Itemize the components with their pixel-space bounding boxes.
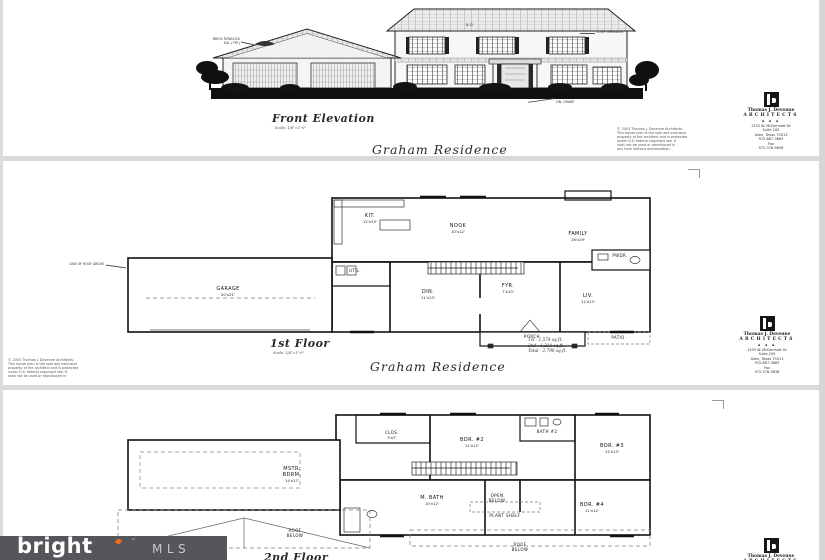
second-floor-drawing xyxy=(50,390,670,560)
room-mstr: MSTR. BDRM. 14'x17' xyxy=(283,466,302,483)
scan-edge xyxy=(819,0,825,560)
architect-stamp: Thomas J. Devenne ARCHITECTS ▪ ▪ ▪ 1333 … xyxy=(726,316,808,374)
copyright-note: © 2003 Thomas J. Devenne Architects. Thi… xyxy=(8,358,104,378)
architect-firm: ARCHITECTS xyxy=(726,337,808,342)
room-util: UTIL. xyxy=(349,268,361,273)
stamp-fax: 972-378-9636 xyxy=(730,146,812,150)
room-patio: PATIO xyxy=(611,335,624,340)
second-floor-title: 2nd Floor xyxy=(264,551,328,560)
room-clos: CLOS.5'x7' xyxy=(385,430,399,440)
architect-stamp: Thomas J. Devenne ARCHITECTS xyxy=(730,538,812,560)
room-mbath: M. BATH10'x12' xyxy=(420,495,444,506)
scanned-plan-sheet: BRICK ROWLOCK SILL (TYP.) 8:12 COMP. SHI… xyxy=(0,0,825,560)
architect-logo-icon xyxy=(760,316,775,331)
room-fyr: FYR.7'x10' xyxy=(502,283,514,294)
room-nook: NOOK10'x12' xyxy=(450,223,467,234)
first-floor-drawing xyxy=(50,180,670,370)
plant-shelf-label: PLANT SHELF xyxy=(489,513,520,518)
corner-mark xyxy=(688,169,700,178)
room-bdr4: BDR. #411'x12' xyxy=(580,502,604,513)
residence-name: Graham Residence xyxy=(370,359,506,374)
room-bath2: BATH #2 xyxy=(537,429,558,434)
copyright-note: © 2003 Thomas J. Devenne Architects. Thi… xyxy=(617,127,723,151)
elevation-annotation-grade: FIN. GRADE xyxy=(556,101,574,105)
roof-below-label: ROOF BELOW xyxy=(512,542,528,552)
first-floor-title: 1st Floor xyxy=(270,337,330,350)
panel-second-floor: CLOS.5'x7' BDR. #211'x12' BATH #2 BDR. #… xyxy=(0,390,825,560)
residence-name: Graham Residence xyxy=(372,142,508,157)
room-garage: GARAGE20'x21' xyxy=(216,286,239,297)
floorplan-walls xyxy=(128,191,650,346)
elevation-drawing xyxy=(195,4,665,119)
architect-stamp: Thomas J. Devenne ARCHITECTS ▪ ▪ ▪ 1333 … xyxy=(730,92,812,150)
bright-mls-brand-text: bright xyxy=(17,534,93,558)
elevation-annotation-shingles: COMP. SHINGLES xyxy=(596,31,623,35)
room-bdr2: BDR. #211'x12' xyxy=(460,437,484,448)
architect-firm: ARCHITECTS xyxy=(730,113,812,118)
stamp-dots: ▪ ▪ ▪ xyxy=(726,343,808,347)
elevation-annotation-pitch: 8:12 xyxy=(466,24,473,28)
room-open-below: OPEN BELOW xyxy=(489,493,505,503)
elevation-scale: Scale: 1/8"=1'-0" xyxy=(275,126,306,130)
bright-mls-watermark: bright ™ MLS xyxy=(0,536,227,560)
room-liv: LIV.11'x13' xyxy=(581,293,595,304)
room-din: DIN.11'x13' xyxy=(421,289,435,300)
bright-mls-suffix-text: MLS xyxy=(152,542,190,556)
annotation-leader xyxy=(580,33,595,34)
room-bdr3: BDR. #312'x13' xyxy=(600,443,624,454)
roof-below-label: ROOF BELOW xyxy=(287,528,303,538)
panel-first-floor: KIT.12'x13' NOOK10'x12' FAMILY16'x19' UT… xyxy=(0,161,825,385)
architect-logo-icon xyxy=(764,92,779,107)
stamp-dots: ▪ ▪ ▪ xyxy=(730,119,812,123)
room-family: FAMILY16'x19' xyxy=(568,231,587,242)
stamp-fax: 972-378-9636 xyxy=(726,370,808,374)
tree-right xyxy=(629,61,659,91)
trademark-symbol: ™ xyxy=(131,538,136,544)
elevation-title: Front Elevation xyxy=(272,112,375,125)
room-kit: KIT.12'x13' xyxy=(363,213,377,224)
bright-mls-accent-icon xyxy=(115,538,123,544)
house-garage-wing xyxy=(213,29,401,88)
square-footage: 1st - 1,574 sq.ft. 2nd - 1,224 sq.ft. To… xyxy=(528,337,567,354)
first-floor-scale: Scale: 1/4"=1'-0" xyxy=(273,351,304,355)
panel-elevation: BRICK ROWLOCK SILL (TYP.) 8:12 COMP. SHI… xyxy=(0,0,825,156)
scan-edge xyxy=(0,0,3,560)
corner-mark xyxy=(712,400,724,409)
room-pwdr: PWDR. xyxy=(612,253,627,258)
elevation-annotation-sill: BRICK ROWLOCK SILL (TYP.) xyxy=(198,38,240,46)
plan-annotation-roofline: LINE OF ROOF ABOVE xyxy=(58,263,104,267)
architect-logo-icon xyxy=(764,538,779,553)
